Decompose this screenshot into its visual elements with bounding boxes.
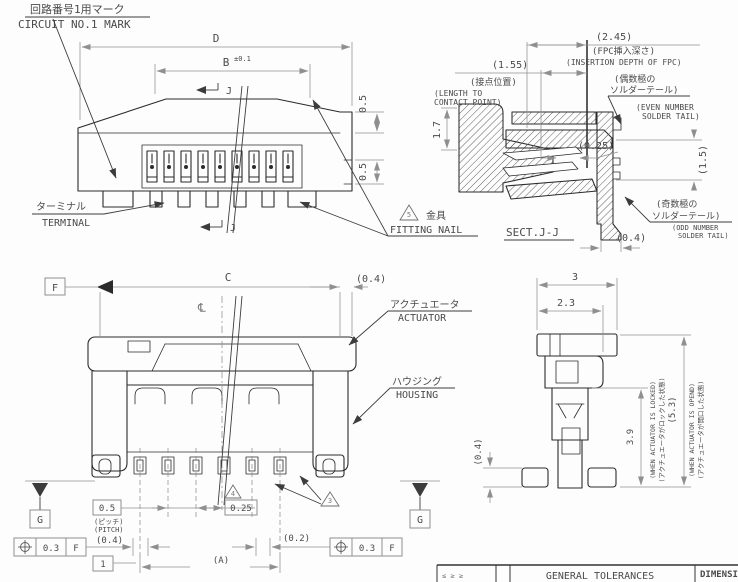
even-tail-jp-2: ソルダーテール): [610, 84, 678, 96]
terminal-en: TERMINAL: [42, 218, 90, 229]
tolerance-range-marks: ≤ ≥ ≥: [442, 572, 463, 580]
contact-point-jp: (接点位置): [470, 76, 517, 88]
housing-en: HOUSING: [396, 390, 438, 401]
dim-D: D: [80, 32, 352, 120]
pitch-en: (PITCH): [94, 526, 124, 534]
dim-A: (A): [140, 556, 280, 573]
callout-circuit-mark: 回路番号1用マーク CIRCUIT NO.1 MARK: [18, 3, 150, 178]
actuator-state-notes: (WHEN ACTUATOR IS LOCKED) (アクチュエータがロックした…: [649, 377, 705, 482]
dim-17: 1.7: [432, 108, 457, 150]
dim-39: 3.9: [592, 388, 648, 487]
dim-245-label: (2.45): [596, 32, 632, 43]
contact-point-en-1: (LENGTH TO: [434, 89, 482, 98]
dim-D-label: D: [213, 32, 220, 45]
general-tolerances-label: GENERAL TOLERANCES: [546, 571, 654, 582]
position-symbol: [18, 540, 32, 554]
datum-f-frame: F: [45, 278, 97, 295]
top-front-view: J J D B ±0.1 0.5 0.5 回路番号1用マーク CIRCUI: [18, 3, 478, 236]
front-centerline: ℄: [197, 296, 242, 510]
dim-1-box: 1: [93, 556, 136, 571]
dim-05-box-label: 0.5: [99, 504, 115, 514]
revision-triangle-5: 5: [407, 211, 411, 219]
dim-1-box-label: 1: [100, 560, 105, 570]
dim-B-tolerance: ±0.1: [234, 55, 251, 63]
dim-05-lower: 0.5: [355, 160, 384, 184]
callout-terminal: ターミナル TERMINAL: [32, 201, 164, 229]
title-block: ≤ ≥ ≥ GENERAL TOLERANCES DIMENSI: [437, 565, 738, 582]
dim-025-box-label: 0.25: [230, 504, 252, 514]
note-opened-jp: (アクチュエータが開口した状態): [696, 381, 705, 480]
dim-04-top: (0.4): [352, 274, 386, 336]
dim-B: B ±0.1: [155, 55, 310, 98]
dim-155-label: (1.55): [492, 60, 528, 71]
callout-actuator: アクチュエータ ACTUATOR: [349, 299, 472, 345]
fcf-left-tolerance: 0.3: [43, 544, 59, 554]
section-label-j-top: J: [226, 86, 232, 97]
dim-15: (1.5): [616, 132, 709, 188]
revision-triangle-4: 4: [231, 490, 235, 498]
dim-15-label: (1.5): [698, 145, 709, 175]
actuator-jp: アクチュエータ: [390, 299, 460, 311]
dim-23: 2.3: [539, 298, 603, 352]
fcf-right-datum: F: [389, 544, 394, 554]
section-arrow-top: J: [196, 83, 232, 97]
dim-B-label: B: [223, 56, 230, 69]
terminal-jp: ターミナル: [36, 201, 86, 213]
side-view-geometry: [522, 334, 617, 488]
dim-23-label: 2.3: [557, 298, 575, 309]
drawing-canvas: J J D B ±0.1 0.5 0.5 回路番号1用マーク CIRCUI: [0, 0, 738, 582]
note-opened-en: (WHEN ACTUATOR IS OPEND): [688, 383, 696, 477]
datum-g-right: G: [400, 481, 440, 528]
front-view: ℄ F C (0.4) アクチュエータ ACTUATOR ハウジング HOUSI…: [14, 271, 472, 573]
note-locked-en: (WHEN ACTUATOR IS LOCKED): [649, 381, 657, 479]
top-view-geometry: [78, 99, 352, 207]
datum-g-right-label: G: [417, 515, 423, 526]
connector-datasheet-drawing: J J D B ±0.1 0.5 0.5 回路番号1用マーク CIRCUI: [0, 0, 738, 582]
dim-05-upper: 0.5: [355, 95, 384, 133]
dim-02: (0.2): [232, 534, 330, 556]
even-tail-jp-1: (偶数極の: [614, 73, 655, 85]
fcf-right: 0.3 F: [330, 538, 402, 556]
section-label-j-bottom: J: [230, 223, 236, 234]
circuit-mark-en: CIRCUIT NO.1 MARK: [18, 18, 131, 31]
dim-39-label: 3.9: [626, 429, 636, 445]
dim-04-left: (0.4): [86, 536, 170, 556]
section-title: SECT.J-J: [504, 226, 574, 240]
dim-04-left-label: (0.4): [96, 536, 123, 546]
even-tail-en-2: SOLDER TAIL): [642, 112, 700, 121]
section-jj-view: (2.45) (FPC挿入深さ) (INSERTION DEPTH OF FPC…: [432, 32, 732, 252]
odd-tail-jp-2: ソルダーテール): [652, 210, 720, 222]
note-locked-jp: (アクチュエータがロックした状態): [657, 377, 666, 482]
dim-05-upper-label: 0.5: [358, 95, 369, 113]
datum-f-label: F: [52, 283, 58, 294]
actuator-en: ACTUATOR: [398, 313, 447, 324]
dim-04-side-label: (0.4): [474, 438, 484, 465]
fcf-right-tolerance: 0.3: [359, 544, 375, 554]
callout-fitting-nail: 5 金具 FITTING NAIL: [300, 100, 478, 236]
callout-housing: ハウジング HOUSING: [353, 375, 455, 424]
circuit-mark-jp: 回路番号1用マーク: [30, 3, 125, 16]
datum-g-left-label: G: [37, 515, 43, 526]
revision-triangle-3-callout: 3: [275, 476, 339, 506]
even-tail-en-1: (EVEN NUMBER: [636, 103, 694, 112]
datum-g-left: G: [25, 481, 95, 528]
section-geometry: [459, 104, 621, 240]
housing-jp: ハウジング: [392, 375, 442, 388]
dim-04-section-label: (0.4): [616, 233, 646, 244]
fitting-nail-en: FITTING NAIL: [390, 225, 462, 236]
contact-point-en-2: CONTACT POINT): [434, 98, 501, 107]
dim-3: 3: [537, 272, 617, 330]
fpc-depth-en: (INSERTION DEPTH OF FPC): [566, 58, 682, 67]
dim-C: C: [97, 271, 340, 336]
callout-even-solder-tail: (偶数極の ソルダーテール) (EVEN NUMBER SOLDER TAIL): [608, 73, 700, 124]
dim-C-label: C: [225, 271, 232, 284]
dim-02-label: (0.2): [283, 534, 310, 544]
fitting-nail-jp: 金具: [426, 209, 446, 222]
fcf-left-datum: F: [73, 544, 78, 554]
revision-triangle-3: 3: [328, 497, 332, 505]
dim-17-label: 1.7: [432, 121, 443, 139]
dim-53-label: (5.3): [668, 396, 678, 423]
dim-05-lower-label: 0.5: [358, 163, 369, 181]
pitch-jp: (ピッチ): [94, 518, 123, 526]
dim-04-side: (0.4): [474, 438, 522, 503]
position-symbol: [334, 540, 348, 554]
odd-tail-en-2: SOLDER TAIL): [678, 232, 729, 240]
fcf-left: 0.3 F: [14, 538, 86, 556]
section-arrow-bottom: J: [200, 220, 236, 234]
dim-025-section-label: (0.25): [578, 141, 614, 152]
dimensions-header-label: DIMENSI: [700, 570, 738, 580]
dim-04-top-label: (0.4): [356, 274, 386, 285]
odd-tail-jp-1: (奇数極の: [656, 198, 697, 210]
fpc-depth-jp: (FPC挿入深さ): [592, 45, 655, 57]
section-title-label: SECT.J-J: [506, 226, 559, 239]
dim-A-label: (A): [213, 556, 229, 566]
terminal-centerlines: [140, 448, 280, 560]
centerline-symbol: ℄: [197, 301, 206, 315]
dim-3-label: 3: [572, 272, 578, 283]
odd-tail-en-1: (ODD NUMBER: [672, 224, 719, 232]
side-view: 3 2.3 3.9 (5.3) (WHEN ACTUATOR IS LOCKED…: [474, 272, 705, 503]
